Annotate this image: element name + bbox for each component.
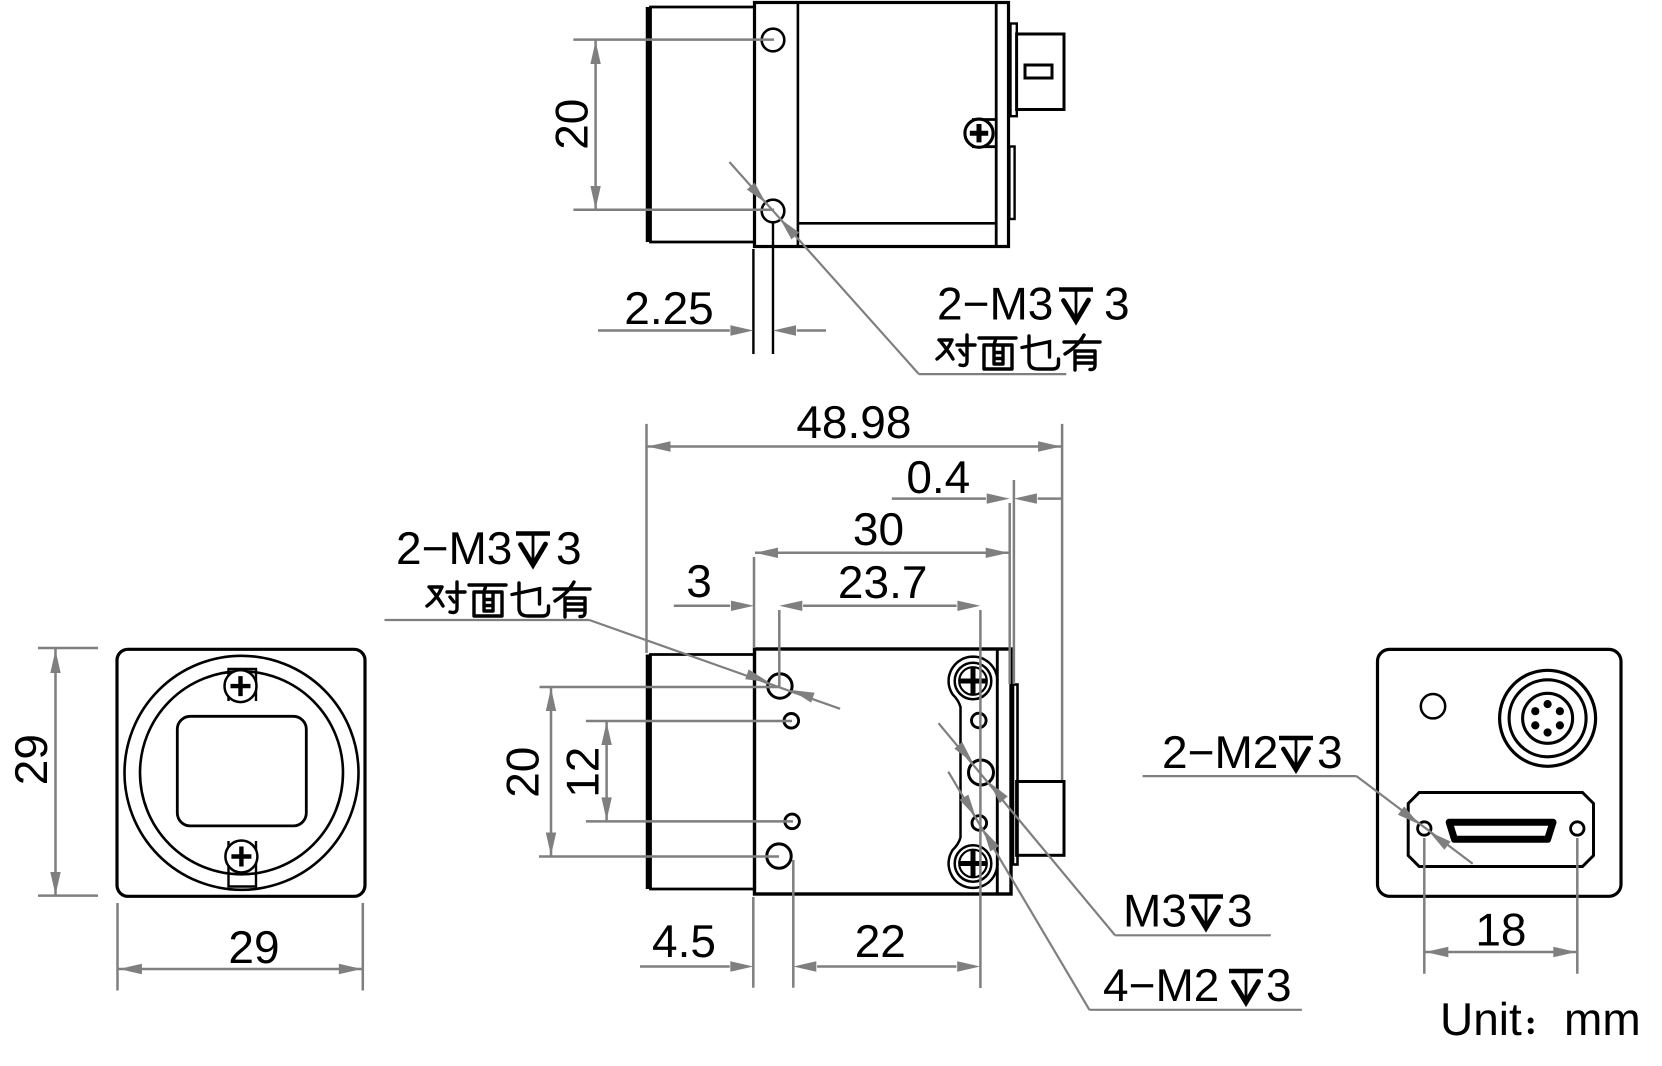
svg-text:22: 22: [855, 915, 906, 967]
svg-text:29: 29: [228, 921, 279, 973]
svg-text:3: 3: [556, 522, 582, 574]
svg-text:3: 3: [1227, 885, 1253, 937]
svg-text:29: 29: [5, 734, 57, 785]
svg-text:20: 20: [497, 747, 549, 798]
svg-text:2−M2: 2−M2: [1162, 726, 1278, 778]
svg-text:48.98: 48.98: [796, 396, 911, 448]
svg-text:4−M2: 4−M2: [1103, 959, 1219, 1011]
svg-text:M3: M3: [1123, 885, 1187, 937]
svg-text:2.25: 2.25: [624, 282, 714, 334]
svg-text:30: 30: [853, 503, 904, 555]
svg-text:12: 12: [557, 747, 609, 798]
svg-text:2−M3: 2−M3: [937, 278, 1053, 330]
svg-text:mm: mm: [1564, 993, 1641, 1045]
svg-text:3: 3: [1104, 278, 1130, 330]
svg-text:0.4: 0.4: [906, 451, 970, 503]
svg-text:23.7: 23.7: [838, 556, 928, 608]
svg-text:3: 3: [686, 555, 712, 607]
svg-text:3: 3: [1317, 726, 1343, 778]
svg-text:Unit: Unit: [1440, 993, 1522, 1045]
svg-text:4.5: 4.5: [652, 915, 716, 967]
svg-text:18: 18: [1475, 903, 1526, 955]
svg-text:3: 3: [1266, 959, 1292, 1011]
svg-text:2−M3: 2−M3: [396, 522, 512, 574]
svg-text:20: 20: [546, 99, 598, 150]
